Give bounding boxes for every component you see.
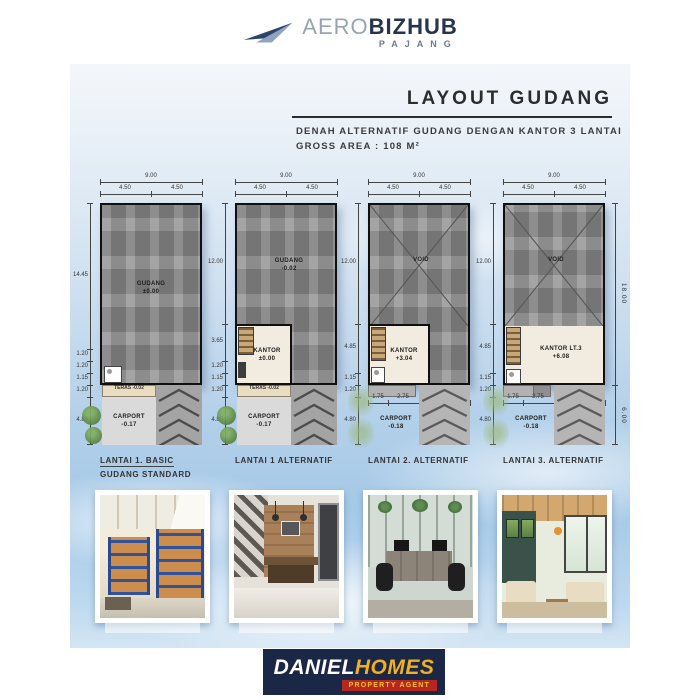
room-label-kantor: KANTOR+3.04 — [390, 347, 417, 363]
dim-label: 4.50 — [254, 185, 266, 191]
toilet-icon — [104, 366, 122, 383]
aerobizhub-logo: AEROBIZHUB PAJANG — [242, 16, 457, 49]
paper-plane-icon — [242, 20, 294, 46]
brand-homes-text: HOMES — [355, 656, 435, 679]
shrub-icon — [483, 384, 509, 418]
dim-label: 4.50 — [171, 185, 183, 191]
dim-label: 14.45 — [64, 272, 88, 278]
photo-office-workspace — [363, 490, 478, 623]
brand-aero-text: AERO — [302, 14, 368, 39]
stairs-icon — [371, 327, 386, 361]
dim-label: 2.75 — [532, 394, 544, 400]
shrub-icon — [483, 416, 509, 450]
cabinet-block — [238, 362, 246, 378]
dim-label: 1.20 — [199, 387, 223, 393]
floorplan-lantai2-alternatif: 9.00 4.50 4.50 12.00 4.85 1.15 1.20 4.80… — [344, 170, 494, 470]
subtitle-line2: GROSS AREA : 108 M² — [296, 141, 420, 152]
dim-label: 9.00 — [145, 173, 157, 179]
driveway-chevrons — [419, 385, 470, 445]
room-label-kantor: KANTOR LT.3+6.08 — [540, 345, 582, 361]
room-label-void: VOID — [548, 256, 564, 264]
driveway-chevrons — [291, 385, 337, 445]
photo-stand — [507, 623, 602, 633]
stairs-icon — [238, 327, 254, 355]
room-label-carport: CARPORT-0.18 — [380, 415, 412, 431]
brand-daniel-text: DANIEL — [274, 656, 355, 679]
subtitle-line1: DENAH ALTERNATIF GUDANG DENGAN KANTOR 3 … — [296, 126, 622, 137]
dim-label: 9.00 — [548, 173, 560, 179]
dim-label: 9.00 — [280, 173, 292, 179]
floorplan-lantai1-basic: 9.00 4.50 4.50 14.45 1.20 1.20 1.15 1.20… — [76, 170, 226, 470]
dim-label: 18.00 — [620, 283, 627, 304]
dim-label: 1.15 — [332, 375, 356, 381]
toilet-icon — [371, 367, 385, 383]
caption-lantai3-alternatif: LANTAI 3. ALTERNATIF — [503, 456, 623, 465]
room-label-carport: CARPORT-0.17 — [113, 413, 145, 429]
room-label-carport: CARPORT-0.17 — [248, 413, 280, 429]
tree-icon — [82, 406, 101, 425]
teras-strip: TERAS -0.02 — [237, 385, 291, 397]
photo-warehouse-interior — [95, 490, 210, 623]
shrub-icon — [348, 384, 374, 418]
room-label-gudang: GUDANG±0.00 — [137, 280, 165, 296]
floorplan-lantai1-alternatif: 9.00 4.50 4.50 12.00 3.65 1.20 1.15 1.20… — [211, 170, 361, 470]
dim-label: 12.00 — [467, 259, 491, 265]
room-label-gudang: GUDANG-0.02 — [275, 257, 303, 273]
dim-label: 4.85 — [467, 344, 491, 350]
dim-label: 1.15 — [199, 375, 223, 381]
dim-label: 3.65 — [199, 338, 223, 344]
dim-label: 6.00 — [620, 407, 627, 424]
photo-stand — [105, 623, 200, 633]
shrub-icon — [348, 416, 374, 450]
caption-lantai1-alternatif: LANTAI 1 ALTERNATIF — [235, 456, 355, 465]
flyer-canvas: AEROBIZHUB PAJANG LAYOUT GUDANG DENAH AL… — [0, 0, 700, 700]
dim-label: 1.20 — [64, 351, 88, 357]
toilet-icon — [506, 369, 521, 384]
dim-label: 2.75 — [397, 394, 409, 400]
photo-stand — [373, 623, 468, 633]
stairs-icon — [506, 327, 521, 365]
tree-icon — [85, 427, 102, 444]
tree-icon — [220, 427, 237, 444]
dim-label: 1.20 — [199, 363, 223, 369]
title-rule — [292, 116, 612, 118]
dim-label: 1.20 — [64, 363, 88, 369]
driveway-chevrons — [156, 385, 202, 445]
room-label-carport: CARPORT-0.18 — [515, 415, 547, 431]
danielhomes-logo: DANIELHOMES PROPERTY AGENT — [263, 649, 445, 695]
page-title: LAYOUT GUDANG — [407, 88, 612, 110]
brand-tagline: PROPERTY AGENT — [342, 680, 437, 691]
brand-bizhub-text: BIZHUB — [369, 14, 458, 39]
void-cross-lines — [370, 205, 468, 326]
room-label-kantor: KANTOR±0.00 — [253, 347, 280, 363]
driveway-chevrons — [554, 385, 605, 445]
teras-strip: TERAS -0.02 — [102, 385, 156, 397]
dim-label: 1.15 — [64, 375, 88, 381]
dim-label: 4.50 — [439, 185, 451, 191]
caption-lantai1-basic: LANTAI 1. BASIC GUDANG STANDARD — [100, 456, 220, 479]
floorplan-lantai3-alternatif: 9.00 4.50 4.50 12.00 4.85 1.15 1.20 4.80… — [479, 170, 629, 470]
dim-label: 4.85 — [332, 344, 356, 350]
dim-label: 9.00 — [413, 173, 425, 179]
dim-label: 4.50 — [522, 185, 534, 191]
dim-label: 12.00 — [332, 259, 356, 265]
dim-label: 4.50 — [119, 185, 131, 191]
room-label-void: VOID — [413, 256, 429, 264]
void-cross-lines — [505, 205, 603, 326]
dim-label: 4.50 — [387, 185, 399, 191]
tree-icon — [217, 406, 236, 425]
dim-label: 1.15 — [467, 375, 491, 381]
photo-stand — [239, 623, 334, 633]
dim-label: 4.50 — [574, 185, 586, 191]
caption-lantai2-alternatif: LANTAI 2. ALTERNATIF — [368, 456, 488, 465]
photo-lounge-interior — [497, 490, 612, 623]
dim-label: 1.20 — [64, 387, 88, 393]
dim-label: 4.50 — [306, 185, 318, 191]
photo-office-lobby — [229, 490, 344, 623]
dim-label: 12.00 — [199, 259, 223, 265]
brand-subtitle: PAJANG — [302, 40, 457, 49]
